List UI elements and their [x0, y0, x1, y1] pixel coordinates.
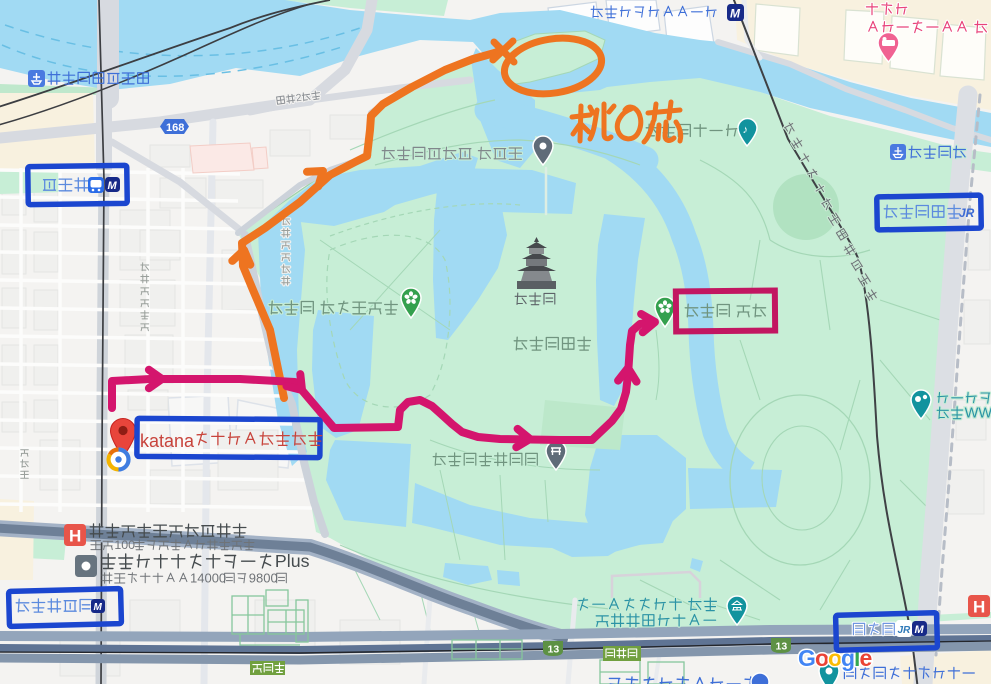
svg-text:9800: 9800 — [249, 570, 278, 585]
svg-text:WW: WW — [965, 406, 991, 422]
svg-text:M: M — [915, 624, 925, 636]
svg-text:13: 13 — [548, 644, 560, 656]
svg-text:14000: 14000 — [190, 570, 226, 585]
svg-text:♪: ♪ — [743, 124, 749, 136]
svg-text:o: o — [815, 645, 829, 671]
svg-text:100: 100 — [114, 538, 135, 552]
svg-text:JR: JR — [959, 206, 975, 220]
svg-text:13: 13 — [776, 641, 788, 653]
svg-text:H: H — [69, 527, 81, 546]
svg-text:M: M — [108, 180, 118, 192]
svg-text:G: G — [798, 645, 816, 671]
svg-text:M: M — [730, 7, 741, 21]
svg-text:H: H — [973, 598, 985, 617]
svg-text:M: M — [94, 602, 103, 613]
svg-text:JR: JR — [898, 625, 912, 636]
svg-text:Plus: Plus — [275, 551, 310, 571]
svg-text:168: 168 — [166, 122, 184, 134]
svg-text:katana: katana — [140, 431, 195, 451]
